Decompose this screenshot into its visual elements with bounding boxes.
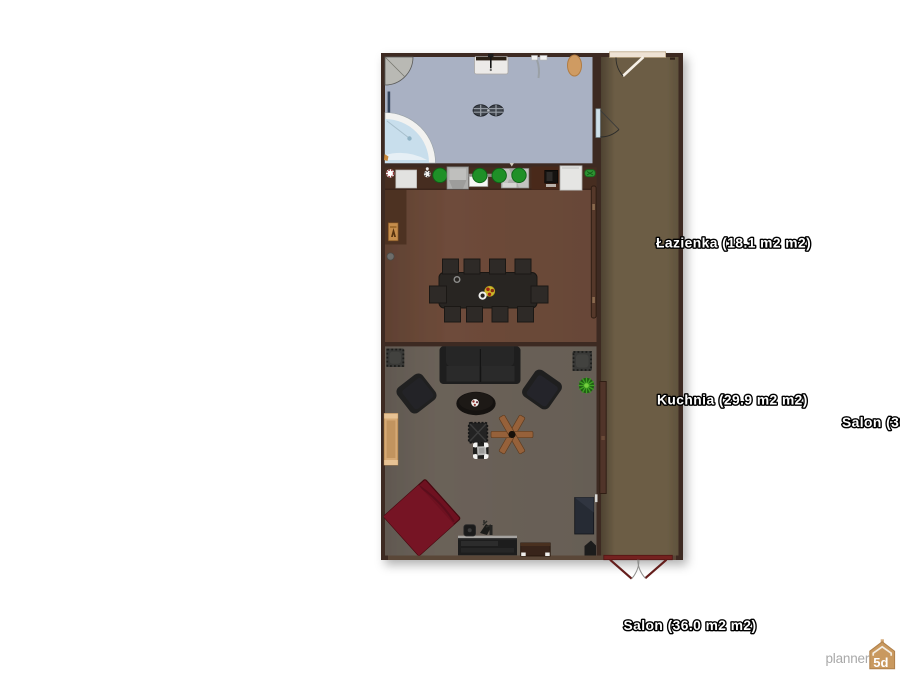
svg-text:Salon (36: Salon (36: [842, 415, 900, 430]
svg-text:Kuchnia (29.9 m2 m2): Kuchnia (29.9 m2 m2): [657, 393, 808, 408]
svg-text:5d: 5d: [873, 655, 888, 670]
svg-text:planner: planner: [826, 651, 870, 666]
svg-text:Salon (36.0 m2 m2): Salon (36.0 m2 m2): [624, 618, 757, 633]
svg-text:Łazienka (18.1 m2 m2): Łazienka (18.1 m2 m2): [656, 236, 811, 251]
